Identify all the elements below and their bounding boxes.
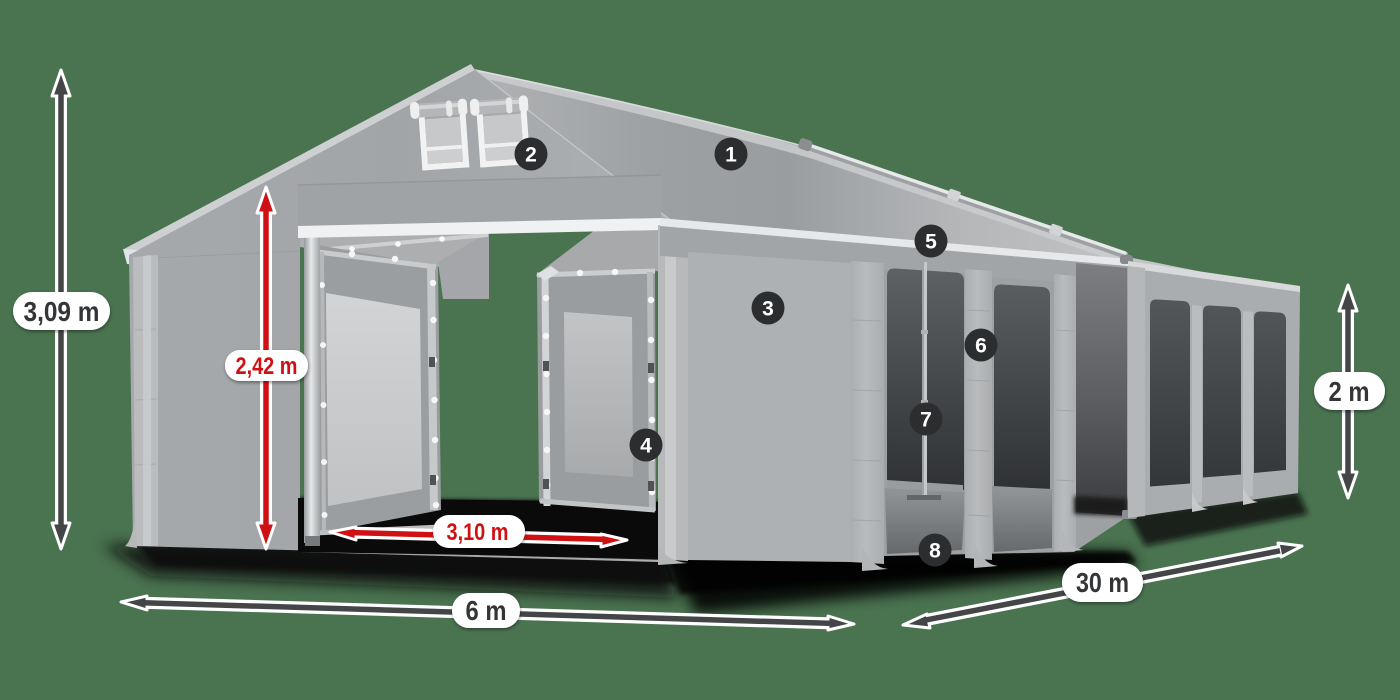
svg-text:6 m: 6 m <box>466 595 507 626</box>
svg-text:3: 3 <box>762 298 774 321</box>
svg-text:6: 6 <box>975 335 987 358</box>
svg-text:3,09 m: 3,09 m <box>24 296 100 327</box>
svg-text:4: 4 <box>640 435 652 458</box>
svg-text:30 m: 30 m <box>1076 567 1129 598</box>
svg-text:2 m: 2 m <box>1329 376 1370 407</box>
svg-text:3,10 m: 3,10 m <box>447 519 509 546</box>
svg-text:2,42 m: 2,42 m <box>236 353 298 380</box>
svg-text:2: 2 <box>525 144 537 167</box>
svg-text:1: 1 <box>725 144 737 167</box>
svg-text:7: 7 <box>920 409 932 432</box>
svg-text:5: 5 <box>925 231 937 254</box>
svg-text:8: 8 <box>929 540 941 563</box>
